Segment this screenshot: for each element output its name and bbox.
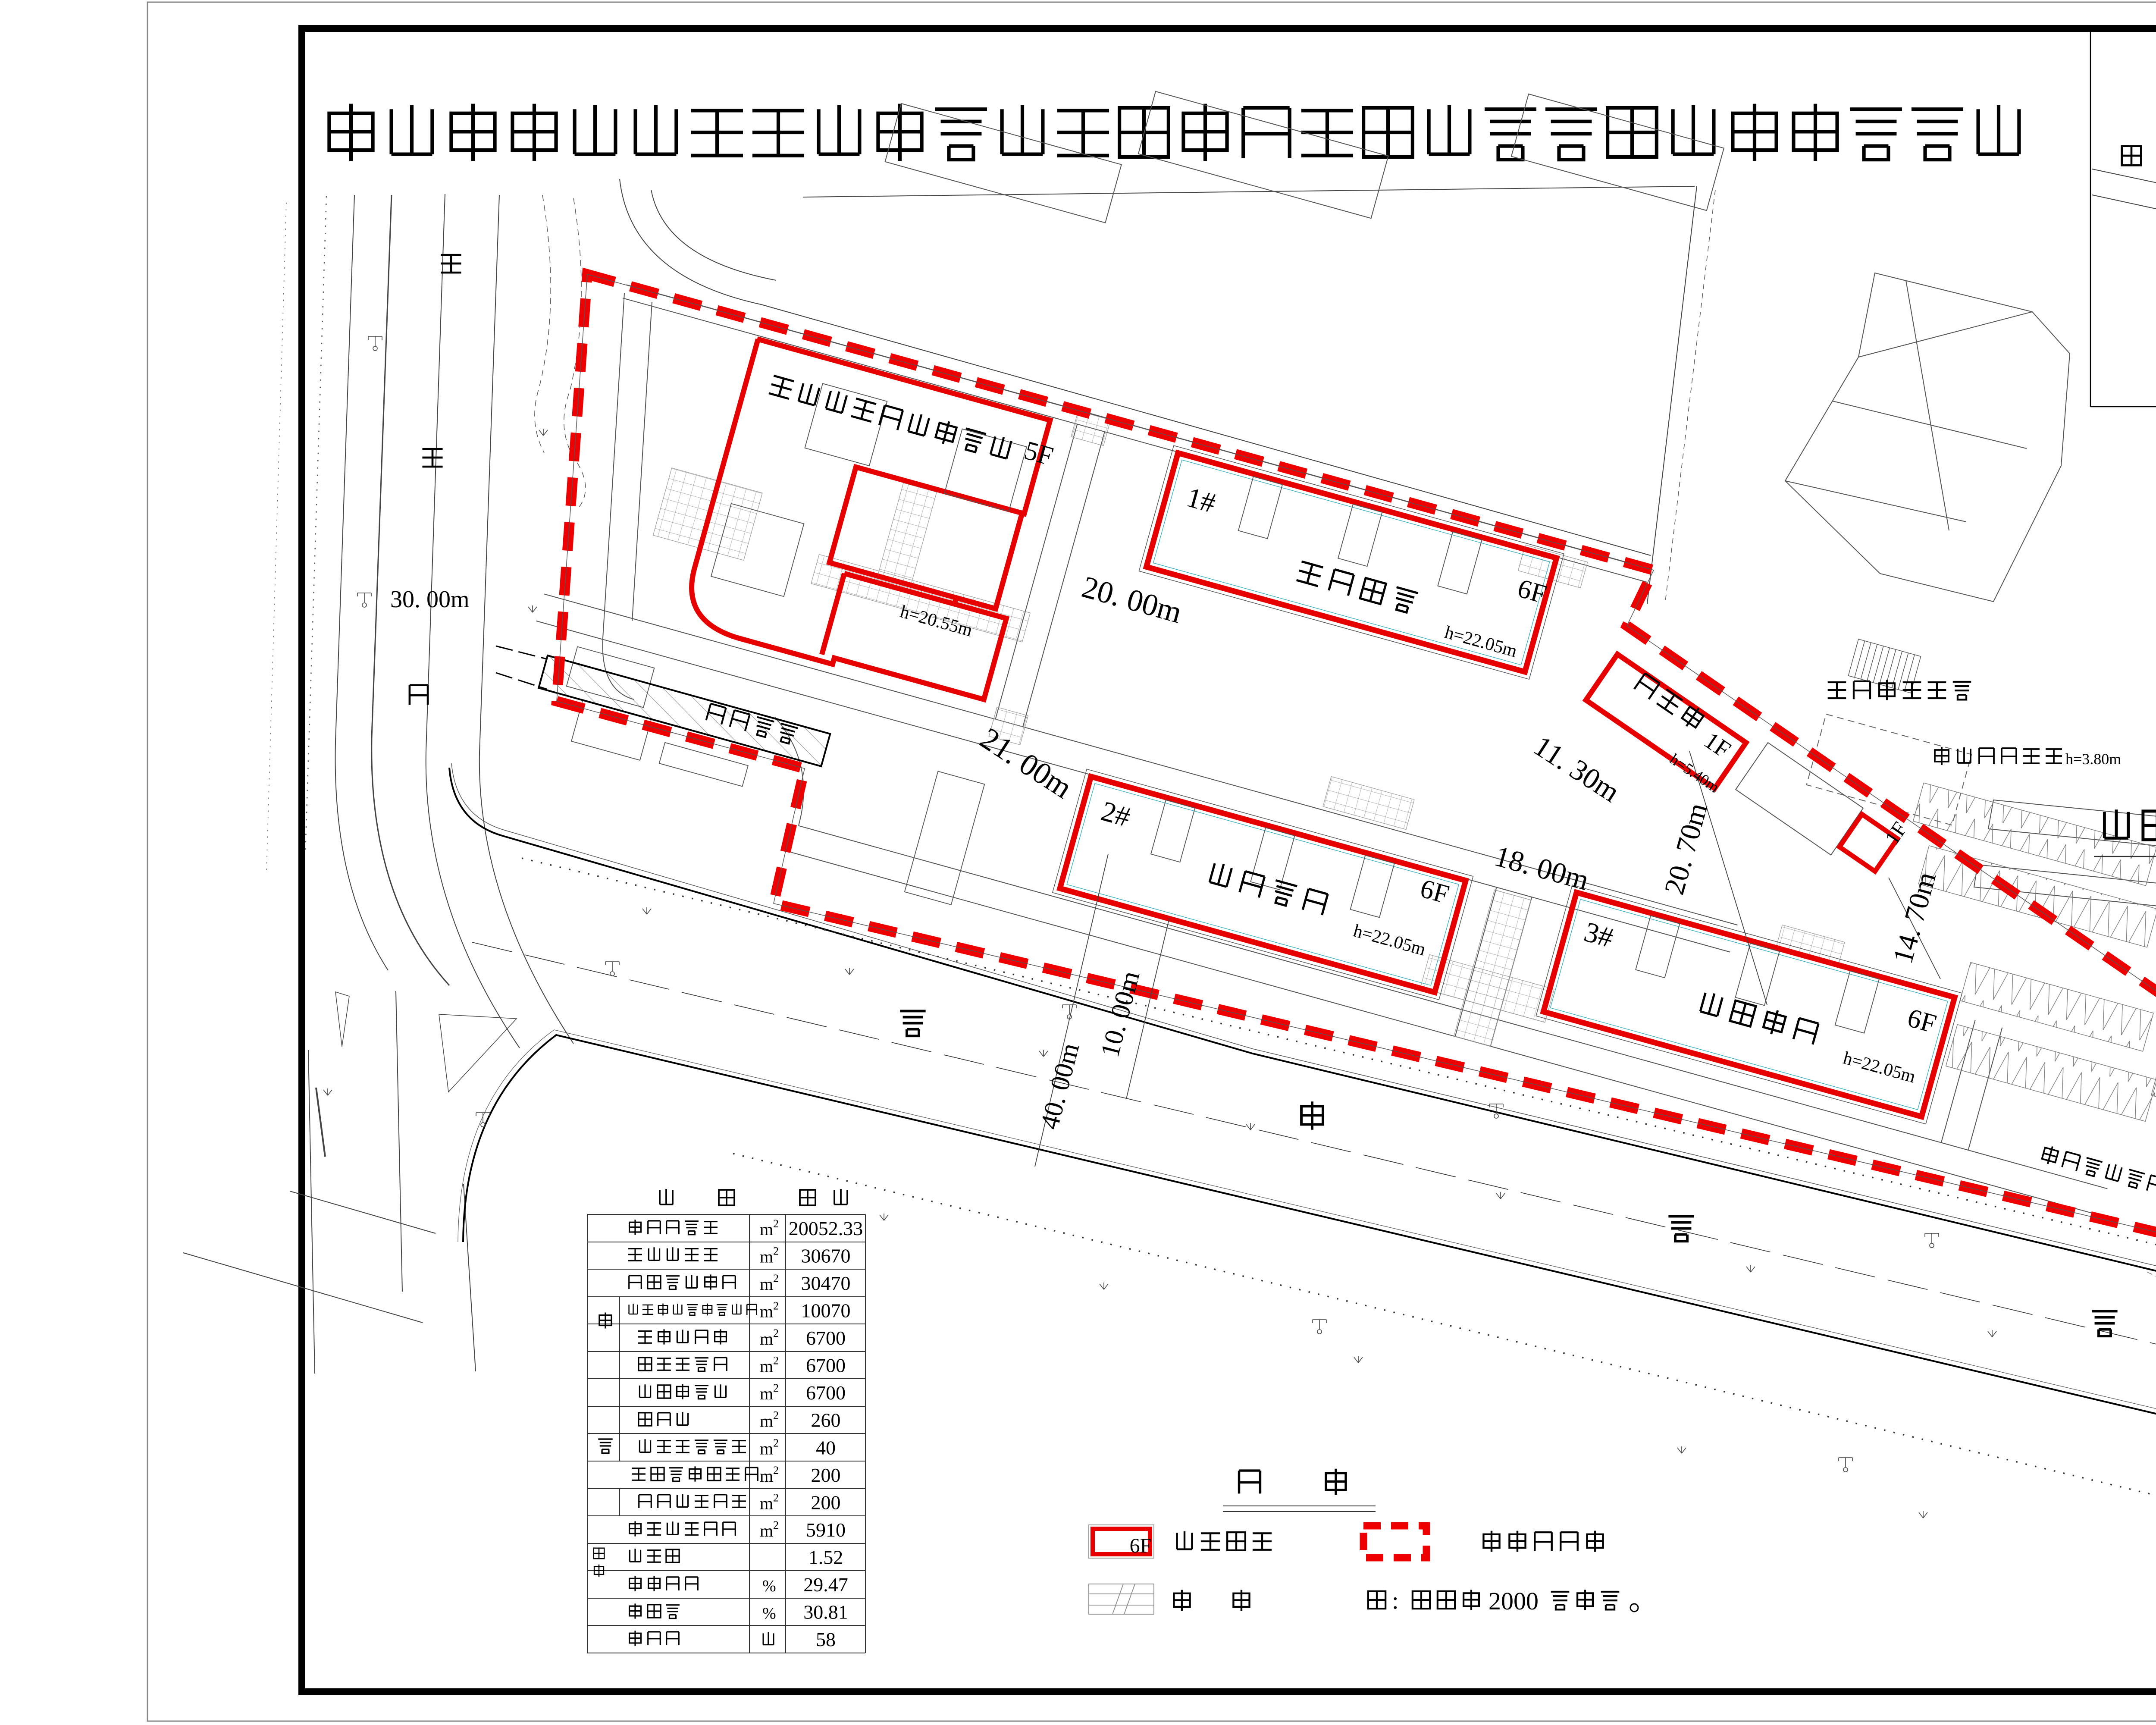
- svg-text:m: m: [760, 1493, 773, 1513]
- svg-text:40: 40: [816, 1436, 836, 1458]
- svg-text:m: m: [760, 1357, 773, 1376]
- svg-text:m: m: [760, 1411, 773, 1431]
- svg-text:m: m: [760, 1274, 773, 1294]
- svg-text:5910: 5910: [806, 1519, 846, 1541]
- svg-text:2: 2: [773, 1382, 779, 1394]
- svg-text:h=3.80m: h=3.80m: [2065, 750, 2121, 768]
- svg-text:2000: 2000: [1489, 1587, 1539, 1615]
- svg-text:29.47: 29.47: [803, 1574, 848, 1596]
- svg-text:200: 200: [811, 1491, 841, 1513]
- svg-text:2: 2: [773, 1409, 779, 1422]
- svg-text:m: m: [760, 1439, 773, 1458]
- svg-text:1.52: 1.52: [808, 1546, 843, 1568]
- svg-text:m: m: [760, 1247, 773, 1266]
- svg-text:10070: 10070: [801, 1299, 851, 1321]
- svg-text:m: m: [760, 1521, 773, 1540]
- svg-text:m: m: [760, 1466, 773, 1486]
- svg-text:2: 2: [773, 1436, 779, 1449]
- svg-text:6F: 6F: [1130, 1534, 1152, 1557]
- svg-text:30670: 30670: [801, 1245, 851, 1267]
- svg-text:30.81: 30.81: [803, 1601, 848, 1623]
- svg-text:%: %: [762, 1577, 776, 1595]
- svg-text:m: m: [760, 1329, 773, 1349]
- svg-text:20052.33: 20052.33: [789, 1217, 863, 1239]
- svg-text:2: 2: [773, 1217, 779, 1230]
- svg-text:m: m: [760, 1384, 773, 1403]
- svg-text:2: 2: [773, 1299, 779, 1312]
- svg-text:260: 260: [811, 1409, 841, 1431]
- svg-text:2: 2: [773, 1272, 779, 1285]
- svg-text:30470: 30470: [801, 1272, 851, 1294]
- svg-text:2: 2: [773, 1464, 779, 1477]
- svg-text:200: 200: [811, 1464, 841, 1486]
- svg-text:30. 00m: 30. 00m: [390, 586, 470, 613]
- svg-text::: :: [1392, 1587, 1399, 1614]
- svg-text:%: %: [762, 1605, 776, 1623]
- svg-text:2: 2: [773, 1519, 779, 1531]
- svg-text:2: 2: [773, 1491, 779, 1504]
- svg-text:2: 2: [773, 1355, 779, 1367]
- svg-text:58: 58: [816, 1628, 836, 1650]
- svg-text:6700: 6700: [806, 1382, 846, 1404]
- svg-text:2: 2: [773, 1327, 779, 1339]
- svg-text:m: m: [760, 1302, 773, 1321]
- svg-text:2: 2: [773, 1245, 779, 1257]
- svg-text:6700: 6700: [806, 1327, 846, 1349]
- svg-text:6700: 6700: [806, 1355, 846, 1377]
- svg-text:m: m: [760, 1220, 773, 1239]
